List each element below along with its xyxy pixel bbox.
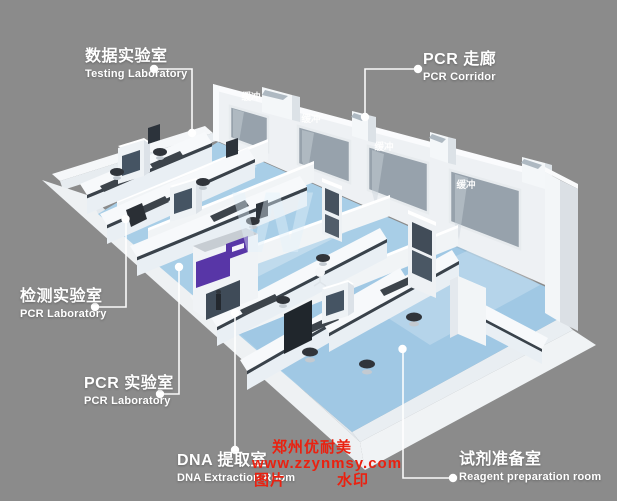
room-label-en: PCR Laboratory — [20, 308, 107, 320]
room-label-en: PCR Laboratory — [84, 395, 174, 407]
callout-pcr-laboratory: PCR 实验室 PCR Laboratory — [84, 375, 174, 407]
watermark-label-right: 水印 — [337, 473, 369, 489]
room-label-en: PCR Corridor — [423, 71, 496, 83]
buffer-label: 缓冲 — [241, 91, 261, 103]
room-label-en: Testing Laboratory — [85, 68, 187, 80]
callout-testing-laboratory: 数据实验室 Testing Laboratory — [85, 48, 187, 80]
glass-cabinet — [408, 210, 436, 298]
room-label-zh: PCR 实验室 — [84, 375, 174, 392]
room-label-en: Reagent preparation room — [459, 471, 601, 483]
watermark-company: 郑州优耐美 — [272, 440, 352, 456]
watermark-website: www.zzynmsy.com — [252, 456, 402, 472]
room-label-zh: 检测实验室 — [20, 288, 107, 305]
leader-pcr-corridor — [365, 69, 418, 117]
room-label-zh: 试剂准备室 — [459, 451, 601, 468]
pale-watermark-letter: W — [232, 175, 314, 271]
callout-inspection-laboratory: 检测实验室 PCR Laboratory — [20, 288, 107, 320]
watermark-label-left: 图片 — [254, 473, 286, 489]
buffer-label: 缓冲 — [301, 113, 321, 125]
buffer-label: 缓冲 — [456, 179, 476, 191]
right-wall — [545, 167, 578, 331]
person-figure — [216, 290, 221, 311]
buffer-label: 缓冲 — [374, 141, 394, 153]
pcr-lab-floorplan-image: W 缓冲 缓冲 缓冲 缓冲 数据实验室 Testing Laboratory P… — [0, 0, 617, 501]
glass-cabinet — [322, 178, 342, 242]
room-label-zh: PCR 走廊 — [423, 51, 496, 68]
room-label-zh: 数据实验室 — [85, 48, 187, 65]
callout-reagent-preparation-room: 试剂准备室 Reagent preparation room — [459, 451, 601, 483]
callout-pcr-corridor: PCR 走廊 PCR Corridor — [423, 51, 496, 83]
